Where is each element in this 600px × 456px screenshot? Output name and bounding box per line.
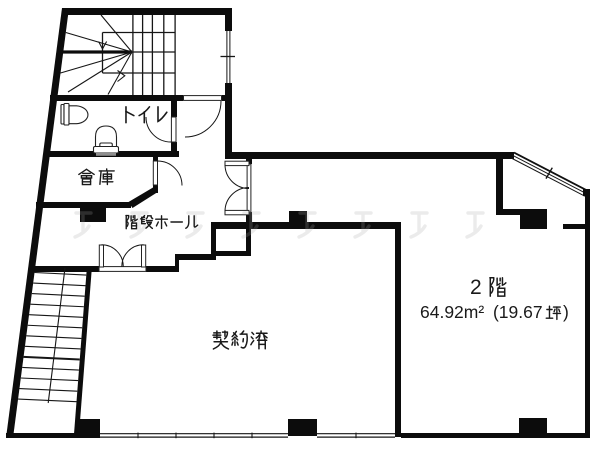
svg-text:): ) xyxy=(563,302,569,322)
svg-text:2: 2 xyxy=(470,276,482,299)
svg-text:64.92m² (19.67: 64.92m² (19.67 xyxy=(420,302,543,322)
